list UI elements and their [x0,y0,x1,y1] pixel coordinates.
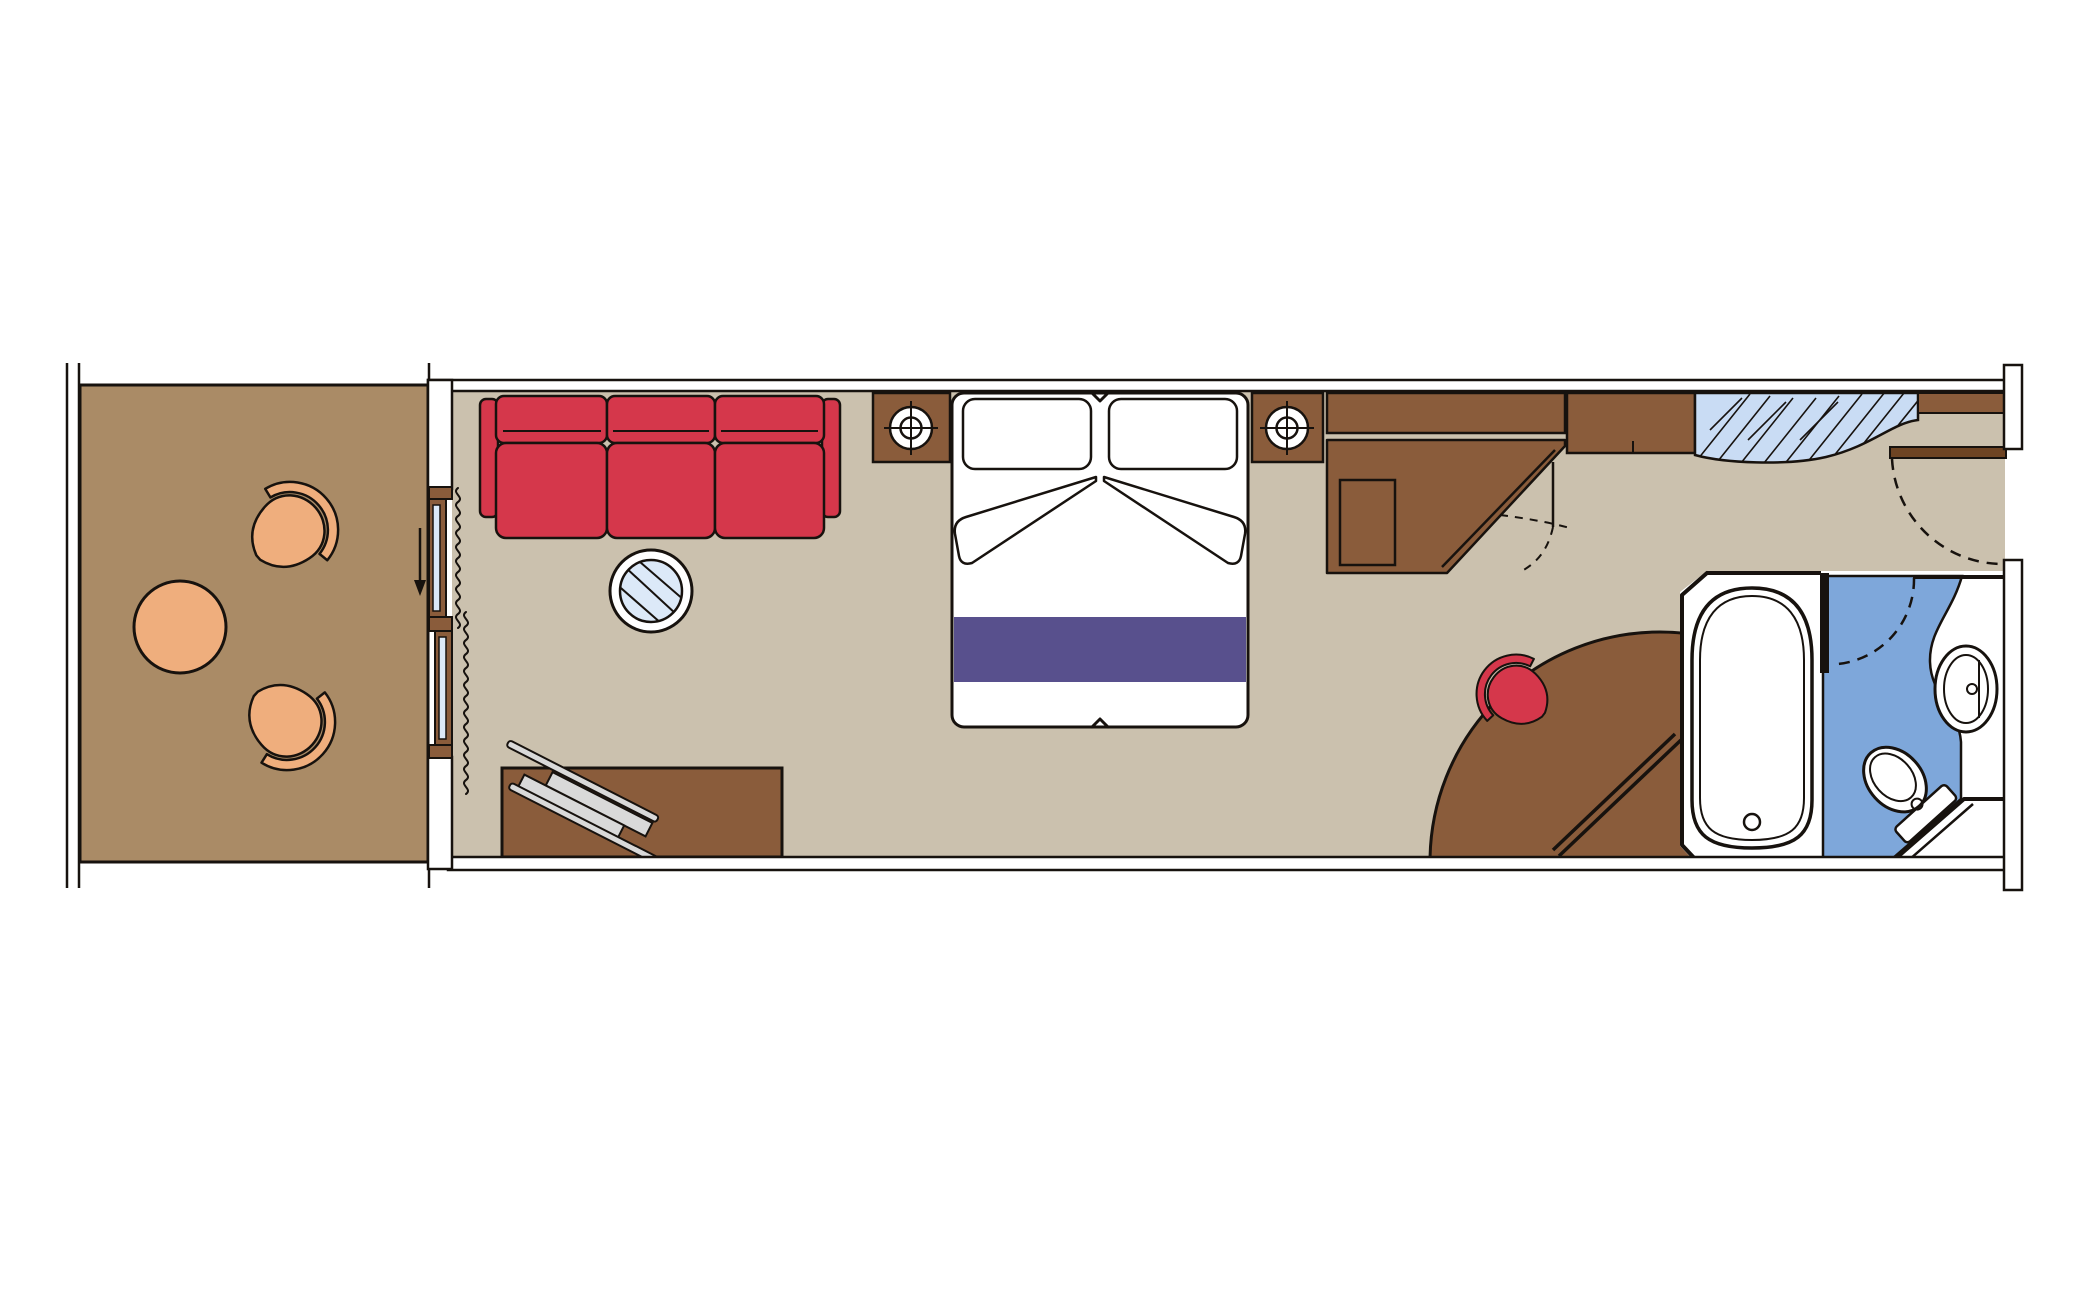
faucet-icon [1967,684,1977,694]
bed-runner [954,617,1246,682]
left-wall [428,757,452,869]
pillow [1109,399,1237,469]
door-glass [433,505,440,611]
stateroom-floor-plan [0,0,2099,1299]
balcony [67,363,428,888]
balcony-table [134,581,226,673]
entry-door-leaf [1890,447,2006,458]
sofa [480,396,840,538]
door-glass [439,637,446,739]
corridor-wall [2004,365,2022,449]
bottom-wall [448,857,2008,870]
bathroom [1680,571,2007,866]
floor-plan-page [0,0,2099,1299]
entry-shelf [1918,393,2006,413]
double-bed [952,393,1248,727]
coffee-table [610,550,692,632]
washbasin [1935,646,1997,732]
bathtub [1692,588,1812,848]
corridor-wall [2004,560,2022,890]
balcony-floor [80,385,428,862]
left-wall [428,380,452,489]
bathroom-door-jamb [1820,573,1829,673]
pillow [963,399,1091,469]
cabinet [1567,393,1695,453]
top-wall [428,380,2006,391]
